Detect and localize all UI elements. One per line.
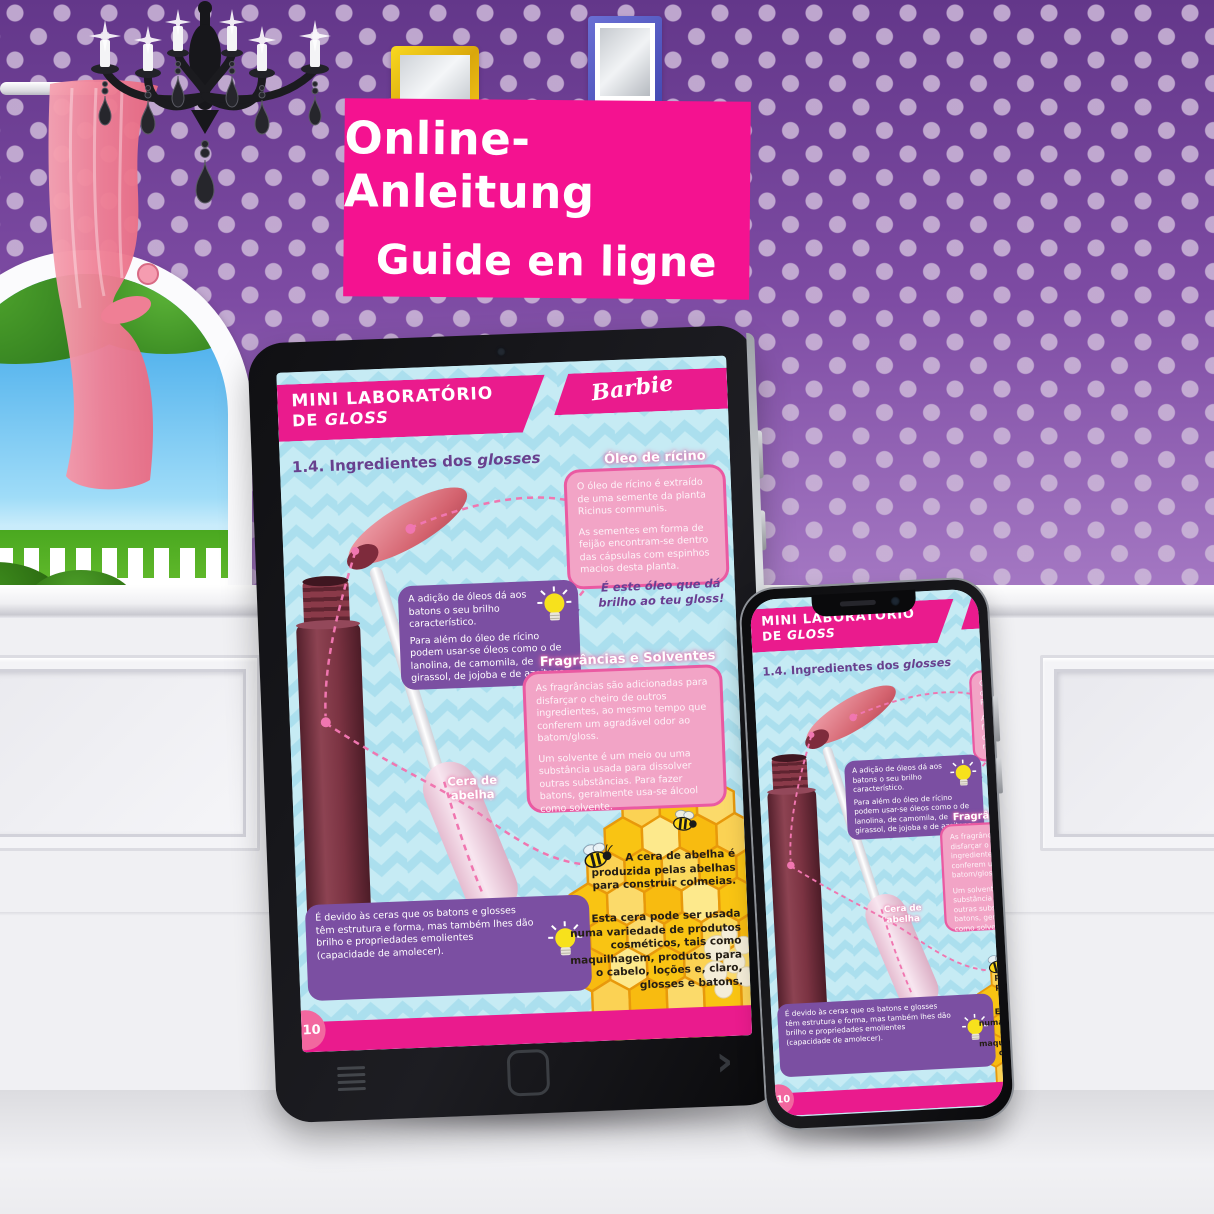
home-button[interactable] — [507, 1049, 551, 1097]
phone-screen: MINI LABORATÓRIO DE GLOSS Barbie 1.4. In… — [750, 588, 1005, 1117]
gloss-tube-body — [296, 623, 372, 927]
lightbulb-icon — [948, 757, 979, 790]
fragrances-callout: As fragrâncias são adicionadas para disf… — [522, 664, 727, 814]
zigzag-frame-mirror — [588, 16, 662, 108]
castor-oil-text: As sementes em forma de feijão encontram… — [578, 522, 716, 577]
chandelier-icon — [60, 0, 360, 260]
volume-button[interactable] — [758, 510, 767, 550]
beeswax-fact-1: A cera de abelha é produzida pelas abelh… — [575, 848, 736, 895]
castor-oil-text: O óleo de rícino é extraído de uma semen… — [577, 476, 714, 519]
menu-icon[interactable] — [337, 1066, 366, 1095]
castor-oil-callout: O óleo de rícino é extraído de uma semen… — [563, 464, 729, 590]
wainscot-panel — [0, 655, 260, 851]
phone-page-holder: MINI LABORATÓRIO DE GLOSS Barbie 1.4. In… — [750, 588, 1005, 1117]
phone-device: MINI LABORATÓRIO DE GLOSS Barbie 1.4. In… — [740, 578, 1014, 1130]
beeswax-fact-2: Esta cera pode ser usada numa variedade … — [973, 1002, 1005, 1071]
banner-line-french: Guide en ligne — [376, 236, 717, 287]
oils-tip-text: A adição de óleos dá aos batons o seu br… — [852, 762, 945, 795]
page-header-title-block: MINI LABORATÓRIO DE GLOSS — [277, 375, 547, 442]
wax-tip-callout: É devido às ceras que os batons e glosse… — [777, 993, 996, 1077]
tablet-screen: MINI LABORATÓRIO DE GLOSS Barbie 1.4. In… — [276, 356, 752, 1053]
beeswax-fact-2: Esta cera pode ser usada numa variedade … — [562, 907, 743, 995]
fragrances-callout: As fragrâncias são adicionadas para disf… — [939, 817, 1004, 933]
beeswax-label: Cera de abelha — [426, 772, 519, 804]
page-header-brand-block: Barbie — [553, 368, 728, 416]
next-chevron-icon[interactable]: › — [715, 1036, 734, 1086]
wax-tip-callout: É devido às ceras que os batons e glosse… — [305, 894, 592, 1001]
gloss-oil-note: É este óleo que dá brilho ao teu gloss! — [595, 576, 728, 611]
fragrances-text: As fragrâncias são adicionadas para disf… — [950, 826, 1005, 880]
gloss-guide-page: MINI LABORATÓRIO DE GLOSS Barbie 1.4. In… — [750, 588, 1005, 1116]
wainscot-panel — [1040, 655, 1214, 851]
oils-tip-text: A adição de óleos dá aos batons o seu br… — [408, 589, 529, 631]
beeswax-label: Cera de abelha — [867, 901, 938, 926]
lightbulb-icon — [535, 584, 575, 627]
wax-tip-text: É devido às ceras que os batons e glosse… — [785, 1002, 952, 1049]
mirror-glass — [600, 28, 650, 96]
fragrances-text: Um solvente é um meio ou uma substância … — [953, 880, 1005, 934]
wax-tip-text: É devido às ceras que os batons e glosse… — [315, 904, 535, 962]
barbie-logo: Barbie — [590, 370, 675, 406]
speaker-icon — [840, 600, 876, 607]
banner-line-german: Online-Anleitung — [344, 111, 751, 221]
gloss-guide-page: MINI LABORATÓRIO DE GLOSS Barbie 1.4. In… — [276, 356, 752, 1053]
beeswax-fact-1: A cera de abelha é produzida pelas abelh… — [982, 956, 1005, 993]
fragrances-text: As fragrâncias são adicionadas para disf… — [535, 677, 711, 746]
banner: Online-Anleitung Guide en ligne — [343, 98, 751, 300]
promo-scene: Online-Anleitung Guide en ligne — [0, 0, 1214, 1214]
mirror-matte — [595, 23, 655, 101]
front-camera-icon — [891, 596, 900, 605]
front-camera-icon — [497, 347, 506, 356]
fragrances-text: Um solvente é um meio ou uma substância … — [538, 747, 714, 816]
tablet-device: MINI LABORATÓRIO DE GLOSS Barbie 1.4. In… — [247, 325, 783, 1124]
